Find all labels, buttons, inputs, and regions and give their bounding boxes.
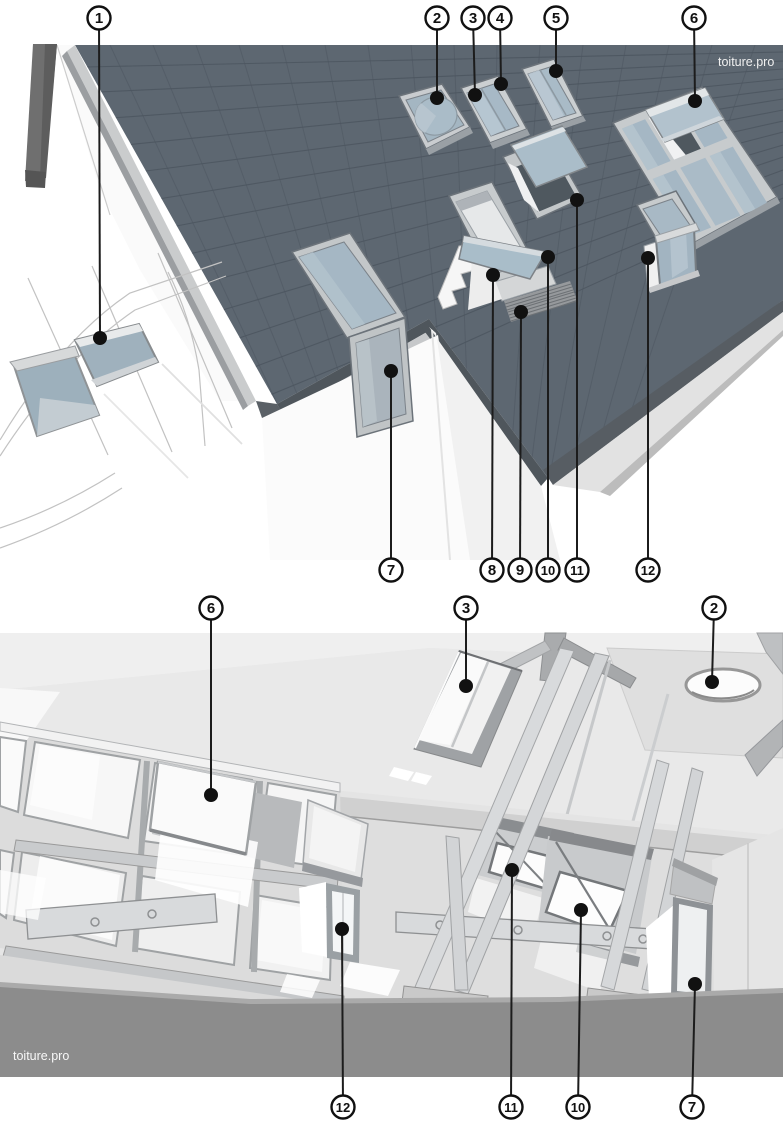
svg-text:8: 8 [488, 562, 496, 579]
svg-text:11: 11 [570, 563, 584, 578]
svg-text:3: 3 [469, 10, 477, 27]
svg-text:2: 2 [433, 10, 441, 27]
svg-text:9: 9 [516, 562, 524, 579]
svg-text:6: 6 [207, 600, 215, 617]
svg-text:toiture.pro: toiture.pro [718, 55, 774, 69]
svg-text:4: 4 [496, 10, 505, 27]
svg-text:toiture.pro: toiture.pro [13, 1049, 69, 1063]
svg-text:12: 12 [336, 1100, 350, 1115]
svg-text:7: 7 [387, 562, 395, 579]
svg-text:12: 12 [641, 563, 655, 578]
svg-text:10: 10 [541, 563, 555, 578]
svg-text:1: 1 [95, 10, 103, 27]
svg-text:3: 3 [462, 600, 470, 617]
svg-text:5: 5 [552, 10, 560, 27]
svg-text:11: 11 [504, 1100, 518, 1115]
svg-text:10: 10 [571, 1100, 585, 1115]
svg-text:6: 6 [690, 10, 698, 27]
svg-text:7: 7 [688, 1099, 696, 1116]
svg-text:2: 2 [710, 600, 718, 617]
